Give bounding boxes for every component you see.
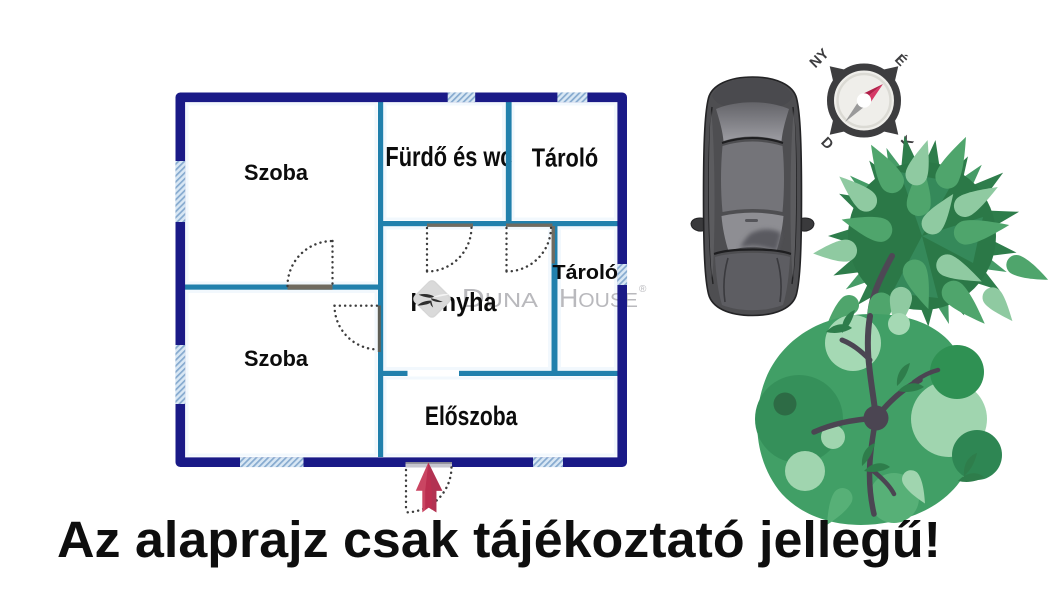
svg-text:D: D [817,134,836,153]
svg-text:Előszoba: Előszoba [425,401,518,431]
svg-text:É: É [891,51,910,70]
svg-text:NY: NY [807,46,833,72]
svg-text:Fürdő és wc: Fürdő és wc [385,141,512,172]
svg-text:Az alaprajz csak tájékoztató j: Az alaprajz csak tájékoztató jellegű! [57,511,941,568]
svg-text:Tároló: Tároló [532,143,599,173]
svg-text:Szoba: Szoba [244,346,309,371]
svg-text:Szoba: Szoba [244,160,309,185]
svg-text:Tároló: Tároló [553,262,619,284]
svg-text:®: ® [639,284,647,295]
